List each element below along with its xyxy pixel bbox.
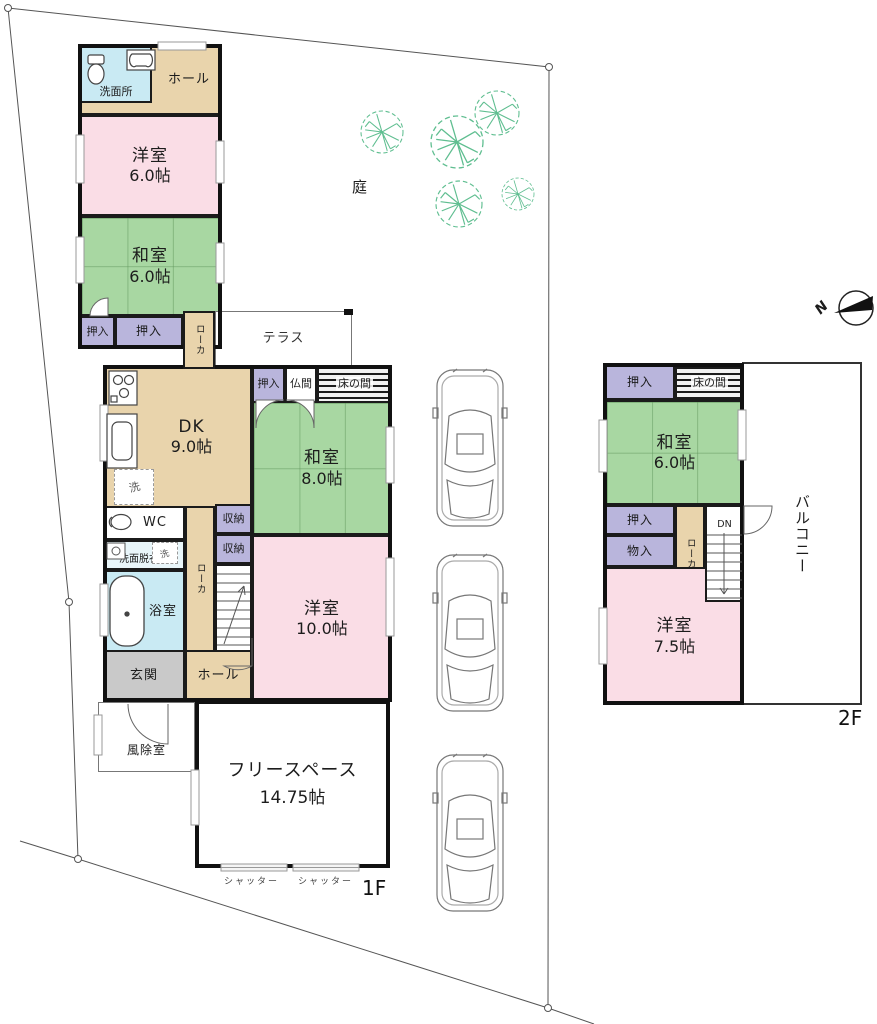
garden-label: 庭 <box>352 176 367 197</box>
room-shuno-bottom: 収納 <box>215 534 252 564</box>
compass-icon <box>834 291 873 325</box>
room-label: 洋室 <box>657 616 693 636</box>
room-label: 和室 <box>304 448 340 468</box>
room-label: 仏間 <box>290 377 312 390</box>
balcony-label: バルコニー <box>793 494 811 574</box>
floor1-label: 1F <box>362 876 386 900</box>
shutter-label-left: シャッター <box>224 874 279 887</box>
room-label: ホール <box>197 668 239 684</box>
washer-space-dk: 洗 <box>114 469 154 505</box>
room-size: 6.0帖 <box>654 453 695 472</box>
room-label: フリースペース <box>228 760 358 782</box>
room-label: 洋室 <box>132 146 168 166</box>
room-wc: WC <box>103 506 185 540</box>
corridor-label: ローカ <box>684 538 695 570</box>
room-yokushitsu: 浴室 <box>103 570 185 652</box>
room-label: 洋室 <box>304 599 340 619</box>
car-icon <box>433 369 507 526</box>
room-label: 押入 <box>627 375 653 389</box>
compass-north-label: N <box>812 298 832 318</box>
room-shuno-top: 収納 <box>215 504 252 534</box>
room-butsuma: 仏間 <box>285 365 317 403</box>
room-tokonoma: 床の間 <box>317 365 392 403</box>
room-freespace: フリースペース 14.75帖 <box>195 700 390 868</box>
corridor-label: ローカ <box>194 563 205 595</box>
room-size: 6.0帖 <box>129 166 170 185</box>
room-label: 洗面所 <box>100 85 133 98</box>
room-label: 押入 <box>87 325 109 338</box>
room-size: 8.0帖 <box>301 469 342 488</box>
room-label: DK <box>150 417 204 437</box>
washer-label: 洗 <box>127 478 142 496</box>
room-label: 和室 <box>657 433 693 453</box>
room-size: 7.5帖 <box>654 637 695 656</box>
stairs-dn-label: DN <box>705 519 744 530</box>
room-2f-tokonoma: 床の間 <box>675 365 744 400</box>
floorplan-canvas: 庭 ホール 洗面所 洋室 6.0帖 和室 6.0帖 押入 押入 ローカ テラス … <box>0 0 877 1024</box>
room-label: 和室 <box>132 246 168 266</box>
room-oshiire-dk: 押入 <box>252 365 285 403</box>
corridor-label: ローカ <box>193 324 204 356</box>
room-washitsu6: 和室 6.0帖 <box>80 216 220 316</box>
balcony: バルコニー <box>742 362 862 705</box>
room-oshiire-left: 押入 <box>80 316 115 347</box>
room-yoshitsu6: 洋室 6.0帖 <box>80 115 220 216</box>
room-label: WC <box>121 515 167 531</box>
washer-space-datsui: 洗 <box>152 542 178 564</box>
room-2f-oshiire-mid: 押入 <box>605 505 675 535</box>
room-label: 押入 <box>258 377 280 390</box>
room-label: ホール <box>168 72 210 88</box>
room-size: 9.0帖 <box>143 437 212 456</box>
shutter-label-right: シャッター <box>298 874 353 887</box>
room-2f-oshiire-top: 押入 <box>605 365 675 400</box>
corridor-roka-lower: ローカ <box>185 506 215 652</box>
room-genkan: 玄関 <box>103 650 185 702</box>
room-label: 物入 <box>627 544 653 558</box>
room-label: 床の間 <box>336 377 373 390</box>
room-fujoshitsu: 風除室 <box>98 702 195 772</box>
car-icon <box>433 554 507 711</box>
terrace: テラス <box>215 311 352 367</box>
staircase-1f <box>215 564 252 652</box>
room-oshiire-right: 押入 <box>115 316 183 347</box>
room-washitsu8: 和室 8.0帖 <box>252 401 392 535</box>
room-yoshitsu10: 洋室 10.0帖 <box>252 535 392 702</box>
garden-trees-icon <box>361 91 534 227</box>
room-label: 押入 <box>627 513 653 527</box>
terrace-label: テラス <box>263 331 305 347</box>
room-label: 風除室 <box>127 743 166 757</box>
room-label: 押入 <box>136 324 162 338</box>
room-senmenjo: 洗面所 <box>80 46 152 103</box>
room-size: 6.0帖 <box>129 267 170 286</box>
room-label: 玄関 <box>130 668 158 684</box>
floor2-label: 2F <box>838 706 862 730</box>
room-size: 10.0帖 <box>296 619 348 638</box>
corridor-roka-upper: ローカ <box>183 311 215 369</box>
room-label: 収納 <box>223 542 245 555</box>
room-hall-lower: ホール <box>185 650 252 702</box>
room-2f-monoiire: 物入 <box>605 535 675 567</box>
room-label: 浴室 <box>149 604 177 620</box>
room-2f-washitsu6: 和室 6.0帖 <box>605 400 744 505</box>
car-icon <box>433 754 507 911</box>
room-label: 床の間 <box>691 376 728 389</box>
room-label: 収納 <box>223 512 245 525</box>
room-size: 14.75帖 <box>260 788 326 808</box>
washer-label: 洗 <box>159 546 171 561</box>
